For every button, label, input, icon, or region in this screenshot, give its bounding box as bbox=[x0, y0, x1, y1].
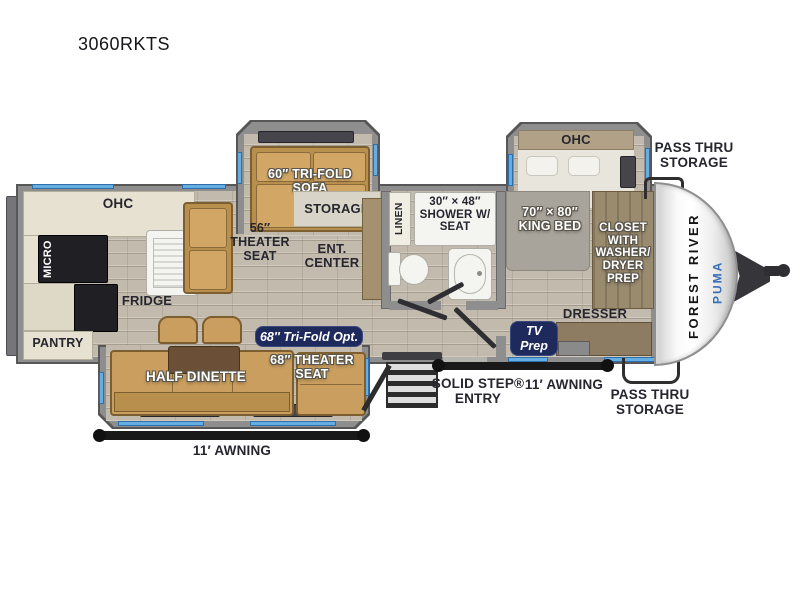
toilet-bowl bbox=[399, 254, 429, 285]
pillow bbox=[526, 156, 558, 176]
theater-seat-56-label: 56″ THEATER SEAT bbox=[226, 222, 294, 263]
awning-cap bbox=[432, 359, 445, 372]
shower-drain bbox=[477, 271, 482, 276]
seat-cushion bbox=[189, 208, 227, 248]
bench-backrest bbox=[114, 392, 290, 412]
pillow bbox=[568, 156, 600, 176]
fridge bbox=[74, 284, 118, 332]
micro-label: MICRO bbox=[40, 237, 56, 281]
brand-puma: PUMA bbox=[710, 236, 726, 328]
pantry-label: PANTRY bbox=[26, 337, 90, 351]
tv-prep-badge: TV Prep bbox=[510, 321, 558, 356]
camp-side-awning bbox=[100, 431, 364, 440]
floorplan-canvas: 3060RKTS 60″ TRI-FOLD SOFA OHC bbox=[0, 0, 800, 600]
sofa-slide-window-left bbox=[237, 152, 242, 184]
galley-window bbox=[182, 184, 226, 189]
dresser-label: DRESSER bbox=[550, 307, 640, 321]
shower-pan bbox=[448, 248, 492, 300]
king-bed-label: 70″ × 80″ KING BED bbox=[506, 206, 594, 234]
awning-cap bbox=[601, 359, 614, 372]
fridge-label: FRIDGE bbox=[116, 294, 178, 308]
seat-cushion bbox=[189, 250, 227, 290]
dinette-chair bbox=[202, 316, 242, 344]
pass-thru-top-label: PASS THRU STORAGE bbox=[648, 141, 740, 171]
closet-label: CLOSET WITH WASHER/ DRYER PREP bbox=[592, 222, 654, 285]
sofa-slide-window bbox=[258, 131, 354, 143]
theater-seat-68-label: 68″ THEATER SEAT bbox=[260, 354, 364, 382]
bedroom-ohc-label: OHC bbox=[540, 133, 612, 147]
ent-center-label: ENT. CENTER bbox=[296, 242, 368, 271]
floorplan-title: 3060RKTS bbox=[78, 34, 170, 55]
pass-thru-bottom-label: PASS THRU STORAGE bbox=[606, 388, 694, 418]
dinette-slide-window-bottom bbox=[118, 421, 204, 426]
awning-cap bbox=[93, 429, 106, 442]
linen-label: LINEN bbox=[391, 195, 409, 243]
bedroom-slide-window-left bbox=[508, 154, 513, 186]
tri-fold-option-badge: 68″ Tri-Fold Opt. bbox=[255, 326, 363, 347]
door-side-awning-label: 11′ AWNING bbox=[522, 378, 606, 393]
dinette-slide-window-bottom bbox=[250, 421, 336, 426]
bedroom-wall-lower bbox=[496, 336, 506, 358]
bath-wall-bottom-b bbox=[466, 301, 498, 310]
brand-forest-river: FOREST RIVER bbox=[684, 198, 704, 354]
bedroom-slide-window bbox=[620, 156, 636, 188]
door-side-awning bbox=[438, 362, 608, 370]
sofa-slide-window-right bbox=[373, 144, 378, 176]
bedroom-step bbox=[558, 341, 590, 356]
kitchen-ohc-label: OHC bbox=[86, 197, 150, 212]
solid-step-entry-label: SOLID STEP® ENTRY bbox=[428, 377, 528, 407]
kitchen-cabinet bbox=[23, 283, 75, 331]
hitch-ball bbox=[777, 264, 790, 277]
kitchen-window bbox=[32, 184, 114, 189]
seat-seam bbox=[300, 384, 362, 385]
awning-cap bbox=[357, 429, 370, 442]
dinette-slide-window-left bbox=[99, 372, 104, 404]
shower-label: 30″ × 48″ SHOWER W/ SEAT bbox=[415, 196, 495, 234]
step-platform bbox=[382, 352, 442, 360]
dinette-chair bbox=[158, 316, 198, 344]
half-dinette-label: HALF DINETTE bbox=[134, 370, 258, 385]
camp-side-awning-label: 11′ AWNING bbox=[178, 444, 286, 459]
bath-wall-right bbox=[496, 191, 506, 309]
